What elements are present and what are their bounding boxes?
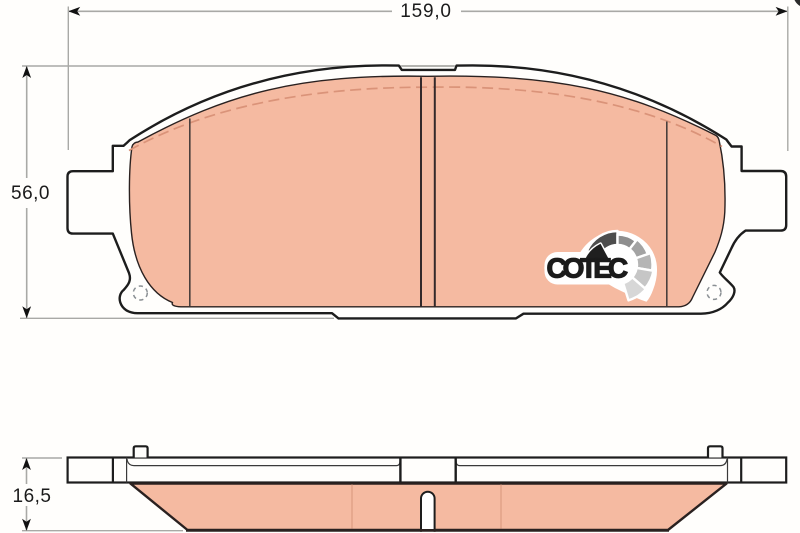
svg-text:16,5: 16,5: [13, 486, 52, 507]
svg-text:COTEC: COTEC: [547, 253, 628, 284]
svg-text:159,0: 159,0: [400, 1, 452, 22]
svg-text:56,0: 56,0: [11, 183, 50, 204]
